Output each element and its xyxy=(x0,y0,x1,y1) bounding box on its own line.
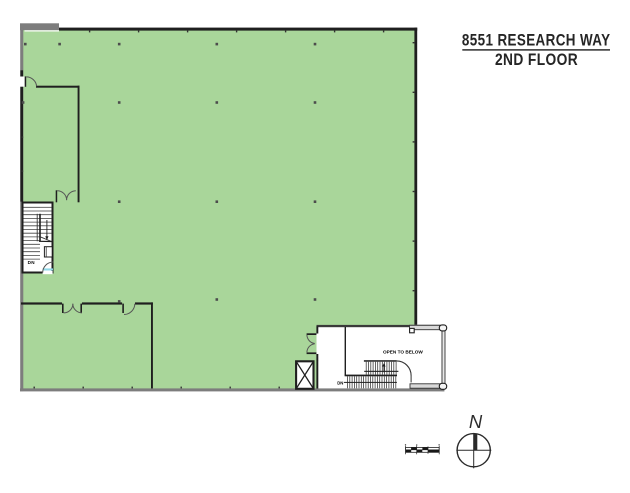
svg-text:DN: DN xyxy=(337,380,343,385)
svg-text:DN: DN xyxy=(28,260,36,265)
svg-text:OPEN TO BELOW: OPEN TO BELOW xyxy=(383,349,423,354)
svg-text:N: N xyxy=(469,411,483,432)
svg-text:8551 RESEARCH WAY: 8551 RESEARCH WAY xyxy=(462,31,611,50)
svg-text:2ND FLOOR: 2ND FLOOR xyxy=(495,51,578,70)
